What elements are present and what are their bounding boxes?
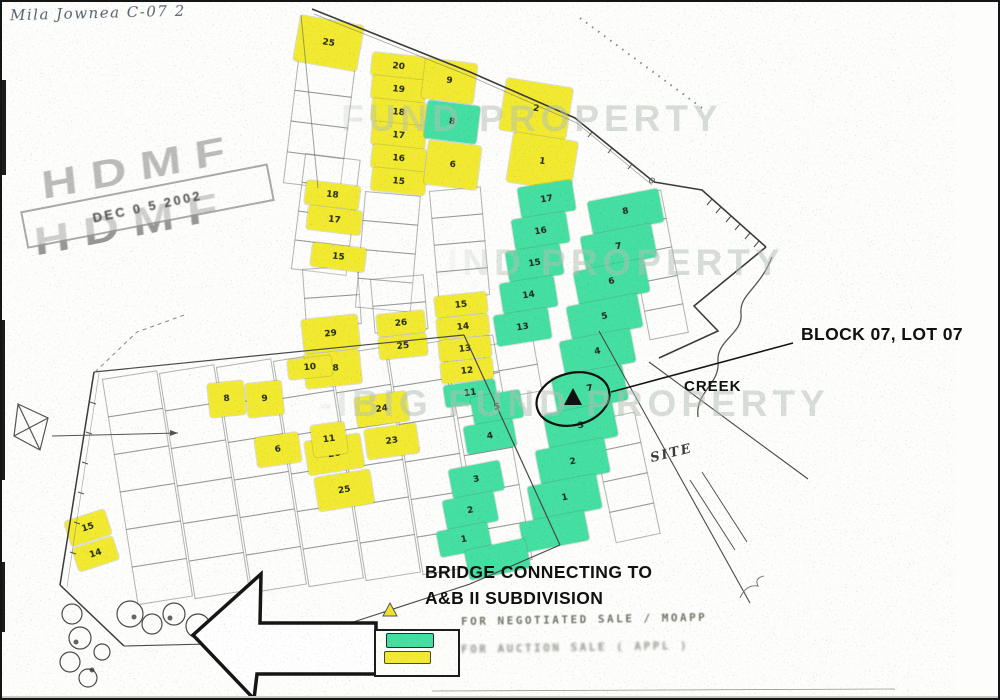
site-label: SITE bbox=[649, 441, 694, 466]
paper-edge-mark bbox=[2, 562, 5, 632]
received-stamp: HDMF HDMF DEC 0 5 2002 bbox=[2, 107, 305, 308]
handwritten-note: Mila Jownea C-07 2 bbox=[10, 2, 186, 25]
annotation-layer: Mila Jownea C-07 2 HDMF HDMF DEC 0 5 200… bbox=[2, 2, 998, 698]
scan-bottom-band bbox=[2, 696, 1000, 700]
legend-negotiated-label: FOR NEGOTIATED SALE / MOAPP bbox=[461, 611, 708, 628]
scanned-subdivision-map: 2520191817161598621181715292826251514131… bbox=[0, 0, 1000, 700]
creek-label: CREEK bbox=[684, 378, 742, 395]
legend-swatch-auction bbox=[384, 651, 431, 664]
bridge-label-line2: A&B II SUBDIVISION bbox=[425, 588, 603, 609]
paper-edge-mark bbox=[2, 80, 6, 175]
paper-edge-mark bbox=[2, 320, 5, 480]
bridge-label-line1: BRIDGE CONNECTING TO bbox=[425, 562, 652, 583]
block-lot-label: BLOCK 07, LOT 07 bbox=[801, 324, 963, 345]
legend-swatch-negotiated bbox=[386, 633, 434, 648]
legend-auction-label: FOR AUCTION SALE ( APPL ) bbox=[461, 639, 689, 656]
